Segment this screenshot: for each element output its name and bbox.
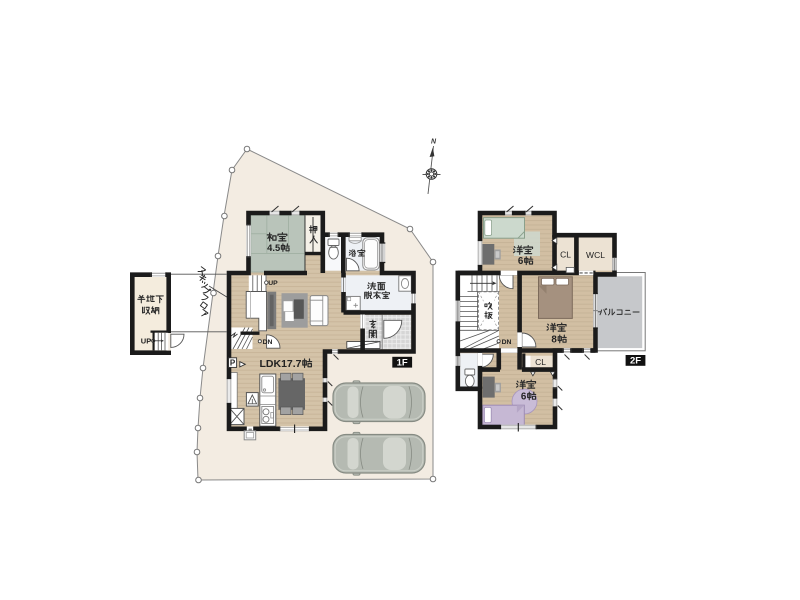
svg-text:P: P — [230, 358, 236, 367]
svg-text:DN: DN — [263, 339, 273, 346]
svg-text:8: 8 — [551, 334, 557, 345]
svg-text:WCL: WCL — [586, 250, 605, 260]
svg-text:DN: DN — [502, 339, 512, 346]
svg-text:4.5: 4.5 — [267, 242, 280, 253]
svg-text:6: 6 — [518, 256, 524, 267]
svg-text:LDK17.7: LDK17.7 — [259, 358, 301, 370]
svg-text:6: 6 — [521, 391, 527, 402]
svg-text:1F: 1F — [397, 357, 408, 368]
svg-text:CL: CL — [560, 250, 571, 260]
svg-text:CL: CL — [535, 357, 546, 367]
svg-text:UP: UP — [268, 280, 278, 287]
svg-text:N: N — [431, 139, 437, 146]
svg-text:2F: 2F — [630, 356, 641, 367]
svg-text:UP: UP — [141, 337, 151, 346]
